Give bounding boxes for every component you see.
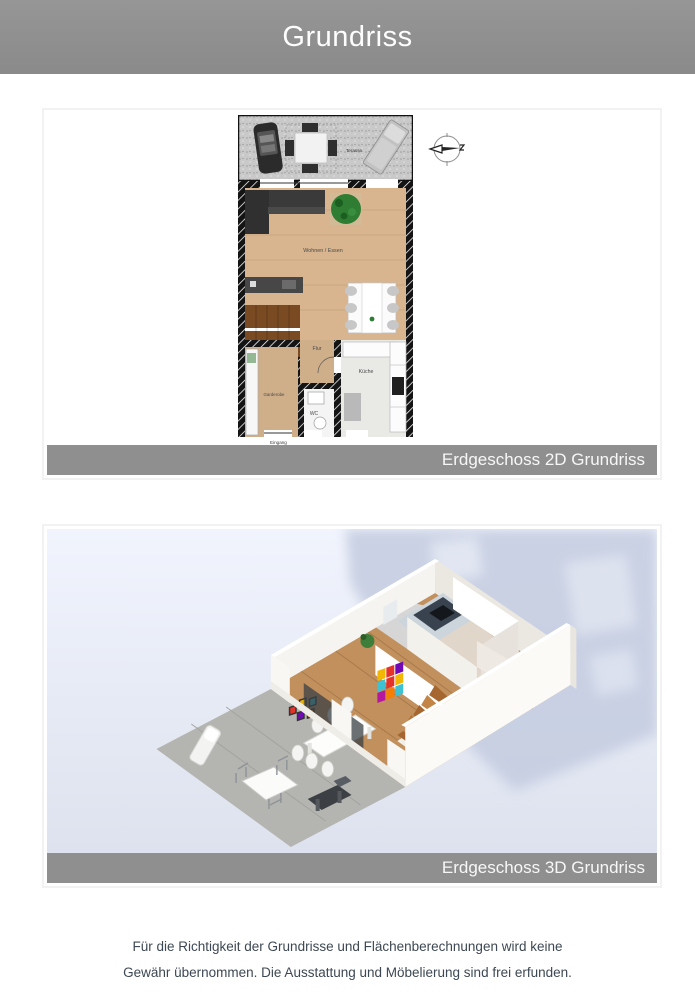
entrance-area: Eingang	[264, 430, 368, 445]
page: Grundriss	[0, 0, 695, 1000]
plant-3d	[360, 634, 374, 648]
disclaimer: Für die Richtigkeit der Grundrisse und F…	[0, 934, 695, 1000]
floorplan-2d-drawing: Terasse	[238, 115, 413, 445]
floorplan-3d-card: Erdgeschoss 3D Grundriss	[42, 524, 662, 888]
compass-icon	[427, 125, 467, 175]
disclaimer-line-2: Gewähr übernommen. Die Ausstattung und M…	[0, 960, 695, 986]
wardrobe-label: Garderobe	[263, 392, 285, 397]
terrace-area: Terasse	[238, 115, 413, 181]
kitchen-area: Küche	[341, 340, 406, 437]
floorplan-2d-image: Terasse	[47, 113, 657, 445]
hall-label: Flur	[312, 346, 321, 352]
sideboard-icon	[245, 277, 303, 293]
wardrobe-area: Garderobe	[245, 347, 298, 437]
terrace-label: Terasse	[346, 148, 363, 153]
kitchen-label: Küche	[358, 369, 373, 375]
floorplan-3d-drawing	[47, 529, 657, 853]
disclaimer-line-1: Für die Richtigkeit der Grundrisse und F…	[0, 934, 695, 960]
wc-area: WC	[304, 389, 334, 437]
page-title: Grundriss	[282, 21, 412, 54]
entrance-label: Eingang	[270, 440, 287, 445]
floorplan-3d-image	[47, 529, 657, 853]
plant-icon	[330, 193, 362, 225]
floorplan-2d-card: Terasse	[42, 108, 662, 480]
floorplan-2d-caption: Erdgeschoss 2D Grundriss	[47, 445, 657, 475]
page-header: Grundriss	[0, 0, 695, 74]
living-room-label: Wohnen / Essen	[303, 248, 342, 254]
floorplan-3d-caption: Erdgeschoss 3D Grundriss	[47, 853, 657, 883]
dining-table-icon	[345, 283, 399, 333]
wc-label: WC	[309, 411, 318, 417]
